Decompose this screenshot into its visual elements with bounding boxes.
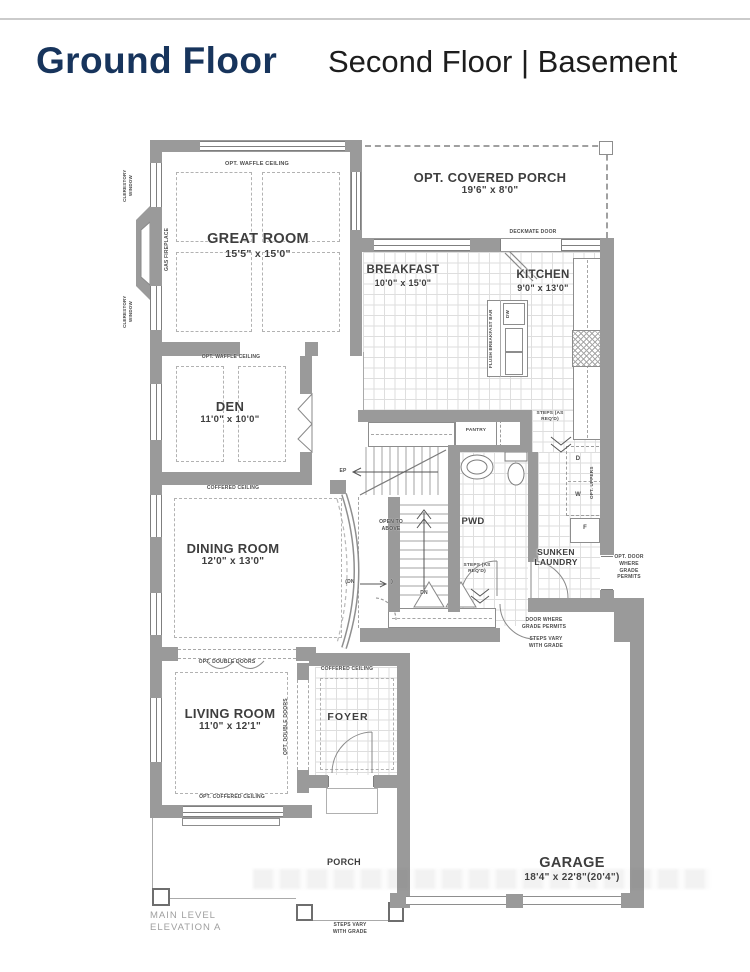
elevation-note-line1: MAIN LEVEL — [150, 910, 216, 921]
note-gas-fireplace: GAS FIREPLACE — [164, 218, 177, 280]
room-name: DINING ROOM — [180, 541, 286, 556]
den-french-doors — [298, 394, 312, 452]
opt-double-doors-opening — [297, 680, 309, 770]
room-label-pantry: PANTRY — [453, 428, 499, 434]
window-seat-dashed-line — [392, 618, 492, 619]
porch-edge-line — [170, 898, 296, 899]
electrical-panel-arrow — [353, 468, 438, 476]
window — [183, 806, 283, 817]
porch-dashed-edge — [606, 145, 608, 238]
room-name: SUNKEN LAUNDRY — [524, 547, 588, 567]
note-opt-door-where-grade: OPT. DOOR WHERE GRADE PERMITS — [613, 554, 645, 581]
open-to-above-dashed-line — [358, 497, 359, 628]
wall-segment — [388, 497, 400, 612]
room-dims: 19'6" x 8'0" — [398, 185, 582, 197]
note-door-where-grade: DOOR WHERE GRADE PERMITS — [521, 617, 567, 631]
note-dishwasher: DW — [505, 306, 519, 322]
room-dims: 12'0" x 13'0" — [180, 556, 286, 568]
note-clerestory-window: CLERESTORY WINDOW — [122, 160, 142, 212]
room-name: OPT. COVERED PORCH — [398, 170, 582, 185]
room-dims: 11'0" x 12'1" — [176, 721, 284, 733]
page-subtitle: Second Floor | Basement — [328, 44, 677, 80]
note-freezer: F — [570, 524, 600, 532]
window — [200, 141, 345, 151]
room-label-covered-porch: OPT. COVERED PORCH 19'6" x 8'0" — [398, 170, 582, 197]
island-sink-basin — [505, 328, 523, 352]
note-deckmate-door: DECKMATE DOOR — [497, 229, 569, 236]
wall-segment — [600, 590, 614, 612]
window — [150, 698, 162, 762]
note-steps-vary: STEPS VARY WITH GRADE — [524, 636, 568, 650]
deckmate-door-opening — [500, 239, 562, 251]
wall-segment — [330, 480, 346, 494]
porch-dashed-edge — [365, 145, 608, 147]
note-opt-double-doors: OPT. DOUBLE DOORS — [188, 659, 266, 666]
note-coffered-ceiling: COFFERED CEILING — [199, 485, 267, 492]
room-dims: 10'0" x 15'0" — [362, 278, 444, 289]
watermark — [253, 869, 710, 889]
garage-door-post — [390, 893, 406, 908]
wall-segment — [374, 775, 410, 788]
note-coffered-ceiling: COFFERED CEILING — [314, 666, 380, 673]
wall-segment — [300, 356, 312, 394]
room-label-breakfast: BREAKFAST 10'0" x 15'0" — [362, 264, 444, 288]
bay-window-sill — [182, 818, 280, 826]
room-dims: 15'5" x 15'0" — [190, 248, 326, 260]
range-appliance — [572, 330, 601, 367]
garage-door-post — [506, 894, 523, 908]
side-door-opening — [601, 556, 613, 590]
note-waffle-ceiling: OPT. WAFFLE CEILING — [208, 161, 306, 168]
room-dims: 11'0" x 10'0" — [184, 414, 276, 425]
room-label-dining-room: DINING ROOM 12'0" x 13'0" — [180, 541, 286, 568]
wall-segment — [150, 647, 178, 661]
opt-double-doors-opening — [178, 649, 296, 659]
wall-segment — [528, 452, 538, 562]
note-down: DN — [416, 590, 432, 597]
note-down-basement-paren: ) — [388, 579, 396, 586]
waffle-ceiling-outline — [176, 252, 252, 332]
wall-segment — [350, 342, 362, 356]
note-open-to-above: OPEN TO ABOVE — [376, 519, 406, 533]
powder-hall-tile-floor — [452, 452, 528, 626]
garage-door — [406, 896, 506, 905]
porch-edge-line — [152, 818, 153, 888]
room-label-kitchen: KITCHEN 9'0" x 13'0" — [500, 269, 586, 293]
window — [351, 172, 361, 230]
dn-arrow — [360, 581, 386, 587]
bench-dashed-line — [371, 434, 452, 435]
page-title: Ground Floor — [36, 40, 277, 82]
room-label-foyer: FOYER — [317, 711, 379, 723]
window — [150, 593, 162, 635]
room-name: FOYER — [317, 711, 379, 723]
porch-edge-line — [313, 920, 397, 921]
note-opt-coffered-ceiling: OPT. COFFERED CEILING — [188, 794, 276, 801]
room-name: BREAKFAST — [362, 264, 444, 278]
wall-segment — [297, 770, 309, 793]
note-electrical-panel: EP — [336, 468, 350, 475]
floor-plan: GREAT ROOM 15'5" x 15'0" OPT. COVERED PO… — [0, 0, 750, 972]
wall-segment — [297, 663, 309, 680]
garage-door — [523, 896, 621, 905]
stair-direction-arrow — [417, 510, 431, 598]
window — [150, 384, 162, 440]
wall-segment — [600, 238, 614, 555]
clerestory-window — [150, 286, 162, 330]
note-opt-double-doors: OPT. DOUBLE DOORS — [283, 688, 296, 766]
stair-break-line — [360, 450, 446, 495]
room-name: KITCHEN — [500, 269, 586, 283]
room-dims: 9'0" x 13'0" — [500, 283, 586, 294]
front-door-opening — [328, 776, 374, 787]
room-label-sunken-laundry: SUNKEN LAUNDRY — [524, 547, 588, 567]
room-name: DEN — [184, 399, 276, 414]
room-label-great-room: GREAT ROOM 15'5" x 15'0" — [190, 231, 326, 260]
note-steps-as-reqd: STEPS (AS REQ'D) — [534, 411, 566, 424]
note-flush-breakfast-bar: FLUSH BREAKFAST BAR — [488, 301, 500, 377]
note-clerestory-window: CLERESTORY WINDOW — [122, 286, 142, 338]
wall-segment — [309, 775, 328, 788]
wall-segment — [448, 445, 530, 452]
room-label-powder-room: PWD — [454, 516, 492, 527]
note-steps-vary: STEPS VARY WITH GRADE — [327, 922, 373, 936]
island-sink-basin — [505, 352, 523, 375]
window — [374, 239, 470, 251]
window — [562, 239, 600, 251]
note-dryer: D — [568, 455, 588, 463]
island-divider — [500, 300, 501, 377]
room-label-living-room: LIVING ROOM 11'0" x 12'1" — [176, 706, 284, 733]
wall-segment — [150, 472, 312, 485]
clerestory-window — [150, 163, 162, 207]
coffered-ceiling-outline — [320, 678, 394, 770]
note-opt-uppers: OPT. UPPERS — [589, 452, 600, 514]
porch-column — [152, 888, 170, 906]
room-name: PWD — [454, 516, 492, 527]
front-step — [326, 788, 378, 814]
window — [150, 495, 162, 537]
note-down-basement: (DN — [342, 579, 358, 586]
wall-segment — [614, 598, 630, 642]
room-label-den: DEN 11'0" x 10'0" — [184, 399, 276, 426]
note-washer: W — [568, 491, 588, 499]
room-name: PORCH — [318, 857, 370, 868]
porch-corner-post — [599, 141, 613, 155]
wall-segment — [309, 653, 410, 666]
room-name: LIVING ROOM — [176, 706, 284, 721]
note-waffle-ceiling: OPT. WAFFLE CEILING — [194, 354, 268, 361]
room-label-porch: PORCH — [318, 857, 370, 868]
wall-segment — [360, 628, 500, 642]
wall-segment — [305, 342, 318, 356]
floor-edge-line — [363, 352, 364, 410]
room-name: GREAT ROOM — [190, 231, 326, 248]
elevation-note-line2: ELEVATION A — [150, 922, 221, 933]
porch-column — [296, 904, 313, 921]
waffle-ceiling-outline — [262, 252, 340, 332]
garage-door-post — [621, 893, 640, 908]
top-divider-line — [0, 18, 750, 20]
wall-segment — [358, 410, 532, 422]
wall-segment — [448, 452, 460, 612]
note-steps-as-reqd: STEPS (AS REQ'D) — [460, 563, 494, 576]
